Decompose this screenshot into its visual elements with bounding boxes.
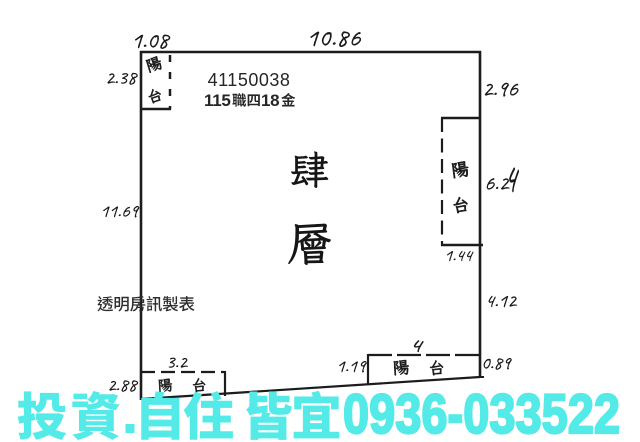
svg-text:0936-033522: 0936-033522 (343, 382, 620, 442)
svg-text:115: 115 (204, 91, 231, 110)
svg-text:18: 18 (261, 91, 279, 110)
svg-text:41150038: 41150038 (208, 70, 291, 90)
